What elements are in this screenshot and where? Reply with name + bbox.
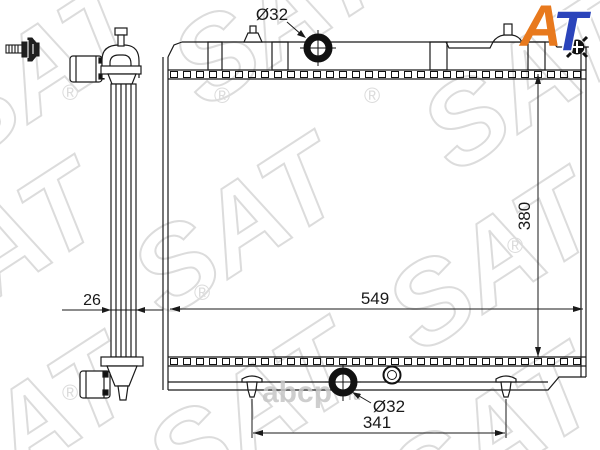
registered-mark: ® (62, 380, 78, 405)
registered-mark: ® (62, 80, 78, 105)
at-logo-letter-t: T (553, 0, 592, 62)
dim-width-label: 549 (361, 289, 389, 308)
dim-height-label: 380 (515, 202, 534, 230)
dim-bottom-port-label: Ø32 (373, 397, 405, 416)
abcp-watermark-text: abcp (262, 376, 332, 409)
drawing-canvas: SAT SAT SAT SAT SAT SAT SAT SAT SAT ® ® … (0, 0, 600, 450)
registered-mark: ® (507, 233, 523, 258)
dim-top-port-label: Ø32 (256, 5, 288, 24)
registered-mark: ® (214, 83, 230, 108)
sat-watermark: SAT (109, 108, 372, 341)
radiator-technical-drawing: SAT SAT SAT SAT SAT SAT SAT SAT SAT ® ® … (0, 0, 600, 450)
small-pipe-opening (384, 367, 401, 384)
filler-plug-icon (504, 24, 512, 35)
registered-mark: ® (194, 280, 210, 305)
registered-mark: ® (364, 83, 380, 108)
dim-thickness-label: 26 (83, 292, 101, 309)
at-logo: A T (518, 0, 592, 62)
